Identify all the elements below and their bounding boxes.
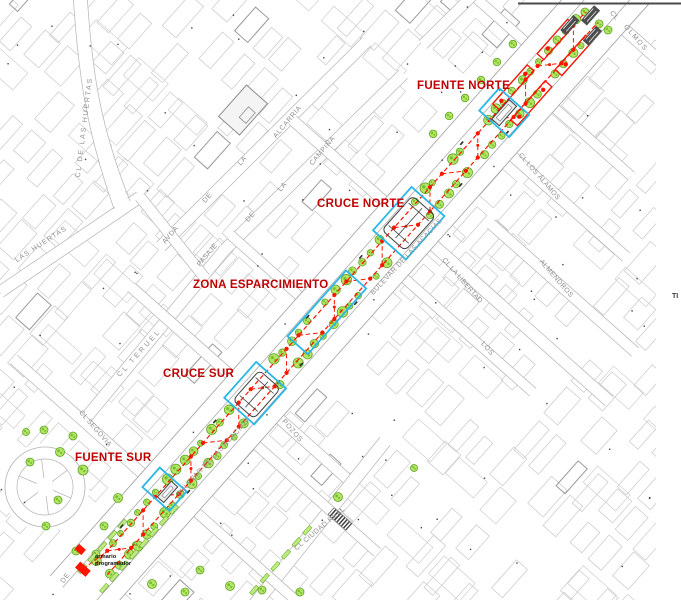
tree-icon — [78, 465, 88, 475]
tree-icon — [23, 429, 30, 436]
zone-label-fuente-sur: FUENTE SUR — [75, 452, 152, 464]
network-node-dot — [541, 88, 545, 92]
network-node-dot — [380, 263, 384, 267]
zone-label-zona-esparcimiento: ZONA ESPARCIMIENTO — [193, 279, 329, 291]
tree-icon — [54, 496, 62, 504]
tree-icon — [480, 151, 488, 159]
tree-icon — [216, 419, 223, 426]
network-node-dot — [416, 223, 420, 227]
tree-icon — [411, 465, 418, 472]
tree-icon — [127, 519, 134, 526]
tree-icon — [152, 489, 158, 495]
network-node-dot — [517, 115, 521, 119]
network-node-dot — [499, 99, 503, 103]
network-node-dot — [333, 305, 336, 308]
tree-icon — [196, 566, 204, 574]
network-node-dot — [129, 546, 133, 550]
network-node-dot — [535, 64, 539, 68]
tree-icon — [114, 494, 123, 503]
tree-icon — [445, 112, 453, 120]
network-node-dot — [320, 330, 324, 334]
tree-icon — [181, 588, 189, 596]
tree-icon — [69, 432, 77, 440]
tree-icon — [493, 58, 501, 66]
tree-icon — [367, 250, 373, 256]
zone-label-cruce-sur: CRUCE SUR — [163, 368, 234, 380]
equipment-label-line2: programador — [95, 561, 132, 567]
tree-icon — [100, 522, 108, 530]
tree-icon — [269, 354, 279, 364]
network-node-dot — [105, 549, 109, 553]
tree-icon — [509, 40, 517, 48]
tree-icon — [429, 130, 437, 138]
network-node-dot — [428, 185, 432, 189]
tree-icon — [258, 586, 266, 594]
tree-icon — [226, 582, 235, 591]
network-node-dot — [189, 467, 192, 470]
tree-icon — [334, 493, 343, 502]
network-node-dot — [476, 144, 479, 147]
network-node-dot — [141, 508, 145, 512]
tree-icon — [359, 258, 366, 265]
tree-icon — [448, 154, 459, 165]
tree-icon — [296, 588, 304, 596]
network-node-dot — [296, 333, 300, 337]
zone-label-cruce-norte: CRUCE NORTE — [317, 198, 405, 210]
network-node-dot — [476, 155, 480, 159]
network-node-dot — [118, 548, 121, 551]
tree-icon — [40, 426, 48, 434]
site-plan-map: CL DE LAS HUERTASLAS HUERTASAVDADELAALCA… — [0, 0, 681, 600]
network-node-dot — [476, 131, 480, 135]
tree-icon — [322, 299, 328, 305]
site-plan-page: CL DE LAS HUERTASLAS HUERTASAVDADELAALCA… — [0, 0, 681, 600]
network-node-dot — [284, 347, 288, 351]
zone-label-fuente-norte: FUENTE NORTE — [417, 80, 510, 92]
network-node-dot — [546, 46, 550, 50]
network-node-dot — [189, 454, 193, 458]
network-node-dot — [332, 317, 336, 321]
tree-icon — [26, 458, 34, 466]
network-node-dot — [344, 279, 348, 283]
network-node-dot — [564, 62, 568, 66]
network-node-dot — [548, 63, 551, 66]
network-node-dot — [523, 72, 527, 76]
network-node-dot — [284, 371, 288, 375]
tree-icon — [56, 448, 65, 457]
network-node-dot — [440, 172, 444, 176]
tree-icon — [42, 522, 50, 530]
right-margin — [656, 0, 681, 600]
network-node-dot — [332, 293, 336, 297]
tree-icon — [604, 26, 612, 34]
tree-icon — [461, 94, 469, 102]
network-node-dot — [141, 532, 145, 536]
network-node-dot — [368, 277, 372, 281]
equipment-label-line1: armario — [95, 554, 117, 560]
network-node-dot — [464, 169, 468, 173]
network-node-dot — [249, 387, 253, 391]
tree-icon — [148, 580, 157, 589]
tree-icon — [553, 36, 561, 44]
edge-text-fragment: TI — [672, 293, 678, 300]
network-node-dot — [201, 441, 205, 445]
